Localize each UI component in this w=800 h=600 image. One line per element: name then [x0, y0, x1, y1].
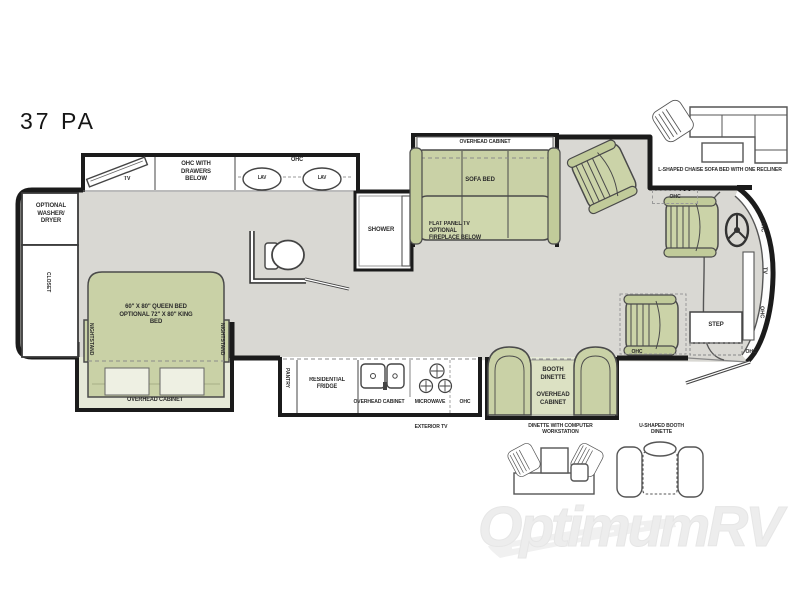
bed-overhead-cabinet-label: OVERHEAD CABINET — [114, 397, 197, 404]
queen-bed-label: 60" X 80" QUEEN BED OPTIONAL 72" X 80" K… — [113, 303, 199, 326]
entry-door — [686, 362, 750, 383]
sofa-overhead-cabinet-label: OVERHEAD CABINET — [441, 139, 529, 145]
fridge-label: RESIDENTIAL FRIDGE — [305, 377, 349, 391]
lav-label: LAV — [308, 176, 336, 182]
booth-dinette-label: BOOTH DINETTE — [534, 366, 573, 381]
wall-stub — [737, 185, 752, 190]
washer-dryer-label: OPTIONAL WASHER/ DRYER — [27, 202, 75, 225]
dinette-computer-label: DINETTE WITH COMPUTER WORKSTATION — [516, 423, 605, 436]
front-ohc-label: OHC — [758, 306, 764, 318]
door-ohc-label: OHC — [739, 349, 763, 355]
shower-label: SHOWER — [359, 226, 403, 234]
l-shaped-sofa-label: L-SHAPED CHAISE SOFA BED WITH ONE RECLIN… — [651, 167, 789, 173]
lav-ohc-label: OHC — [283, 157, 311, 164]
u-shaped-booth-label: U-SHAPED BOOTH DINETTE — [632, 423, 692, 436]
dash-tv-panel — [743, 252, 754, 340]
kitchen-sink — [361, 364, 404, 390]
ohc-outline-top-right: OHC — [652, 190, 698, 204]
ohc-drawers-label: OHC WITH DRAWERS BELOW — [170, 160, 222, 183]
closet-box — [22, 245, 78, 357]
watermark-logo: OptimumRV — [478, 494, 780, 560]
flat-panel-tv-label: FLAT PANEL TV OPTIONAL FIREPLACE BELOW — [429, 221, 486, 242]
lav-label: LAV — [248, 176, 276, 182]
passenger-seat — [624, 295, 678, 355]
bedroom-tv-label: TV — [113, 176, 141, 183]
microwave-label: MICROWAVE — [410, 399, 450, 405]
front-ohc-label: OHC — [759, 220, 765, 232]
step-label: STEP — [694, 321, 738, 329]
steering-wheel — [726, 214, 748, 246]
nightstand-label: NIGHTSTAND — [218, 323, 224, 355]
u-shaped-booth-option — [617, 442, 703, 497]
floorplan-page: 37 PA OptimumRV OPTIONAL WASHER/ DRYER C… — [0, 0, 800, 600]
kitchen-overhead-cabinet-label: OVERHEAD CABINET — [352, 399, 405, 405]
driver-seat — [664, 197, 718, 257]
front-tv-label: TV — [761, 267, 767, 274]
pantry-label: PANTRY — [283, 368, 289, 388]
l-shaped-sofa-option — [690, 107, 787, 163]
dinette-computer-option — [506, 442, 605, 494]
recliner-option — [650, 98, 696, 145]
closet-label: CLOSET — [44, 272, 50, 292]
sofa-bed-label: SOFA BED — [452, 176, 507, 184]
passenger-ohc-label: OHC — [625, 349, 649, 355]
kitchen-ohc-label: OHC — [453, 399, 477, 405]
model-title: 37 PA — [20, 108, 96, 135]
booth-overhead-cabinet-label: OVERHEAD CABINET — [529, 391, 577, 406]
nightstand-label: NIGHTSTAND — [87, 323, 93, 355]
exterior-tv-label: EXTERIOR TV — [407, 424, 455, 430]
